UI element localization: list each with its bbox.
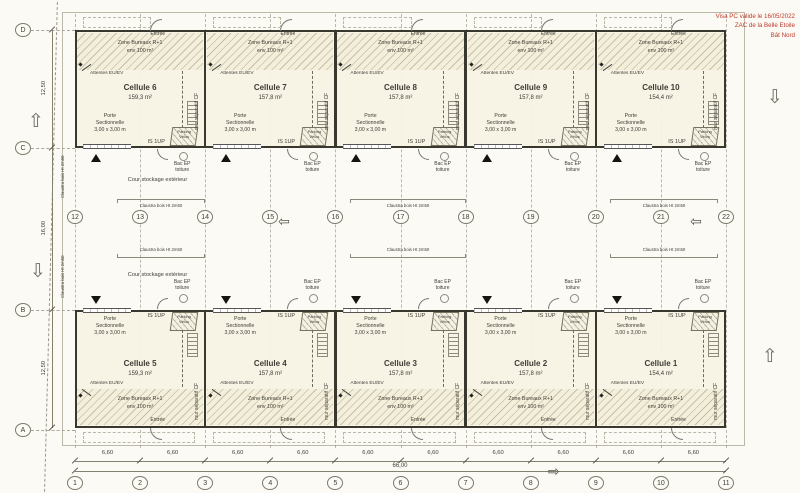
roof-drain-label: toiture: [551, 168, 595, 174]
roof-drain-label: toiture: [160, 168, 204, 174]
sectional-door: [474, 144, 522, 149]
grid-bubble-bottom: 2: [132, 476, 148, 490]
office-zone-label: env 100 m²: [598, 405, 724, 411]
porte-label: Porte: [341, 317, 399, 323]
service-dotted-line: [312, 330, 313, 387]
row-leader-line: [31, 430, 75, 431]
attentes-label: Attentes EU/EV: [611, 71, 644, 76]
roof-drain-label: toiture: [421, 286, 465, 292]
grid-bubble-bottom: 1: [67, 476, 83, 490]
bay-width-label: 6,60: [270, 450, 335, 456]
cell-title: Cellule 9: [466, 84, 596, 93]
cell-area: 154,4 m²: [596, 95, 726, 102]
porte-label: Sectionnelle: [211, 324, 269, 330]
claustra-label: Claustra bois Ht 2m50: [610, 248, 718, 253]
separating-wall-label: mur séparatif CF: [456, 52, 465, 130]
cell-title: Cellule 4: [205, 360, 335, 369]
grid-bubble-bottom: 11: [718, 476, 734, 490]
bay-width-label: 6,60: [140, 450, 205, 456]
separating-wall: [334, 310, 336, 428]
sectional-door: [604, 308, 652, 313]
dim-line-total: [75, 471, 726, 472]
porte-label: 3,00 x 3,00 m: [341, 128, 399, 134]
grid-bubble-bottom: 4: [262, 476, 278, 490]
is1up-label: IS 1UP: [141, 139, 171, 145]
roof-drain-label: toiture: [290, 168, 334, 174]
cell-area: 159,3 m²: [75, 95, 205, 102]
cell-area: 157,8 m²: [205, 371, 335, 378]
canopy-dashed: [83, 17, 151, 28]
courtyard-label: Cour stockage extérieur: [100, 177, 215, 183]
courtyard-label: Cour stockage extérieur: [100, 272, 215, 278]
attentes-label: Attentes EU/EV: [481, 381, 514, 386]
cell-area: 157,8 m²: [205, 95, 335, 102]
roof-drain-label: toiture: [681, 286, 725, 292]
separating-wall-label: mur séparatif CF: [325, 342, 334, 420]
attentes-label: Attentes EU/EV: [481, 71, 514, 76]
grid-bubble-bottom: 8: [523, 476, 539, 490]
porte-label: Sectionnelle: [211, 121, 269, 127]
bay-width-label: 6,60: [466, 450, 531, 456]
cell-title: Cellule 8: [335, 84, 465, 93]
cell-area: 159,3 m²: [75, 371, 205, 378]
flow-arrow-up: ⇧: [28, 110, 44, 132]
porte-label: Porte: [81, 114, 139, 120]
porte-label: Porte: [602, 317, 660, 323]
is1up-label: IS 1UP: [271, 313, 301, 319]
canopy-dashed: [604, 432, 716, 443]
office-zone-label: Zone Bureaux R+1: [468, 397, 594, 403]
porte-label: Sectionnelle: [472, 324, 530, 330]
porte-label: Porte: [211, 317, 269, 323]
dim-tick: [723, 457, 729, 463]
roof-drain-label: toiture: [290, 286, 334, 292]
attentes-label: Attentes EU/EV: [350, 71, 383, 76]
office-zone-label: Zone Bureaux R+1: [207, 397, 333, 403]
canopy-dashed: [343, 432, 455, 443]
grid-bubble-bottom: 3: [197, 476, 213, 490]
roof-drain-circle: [700, 294, 709, 303]
dim-span-label: 12,50: [41, 351, 47, 385]
porte-label: Sectionnelle: [602, 324, 660, 330]
flow-arrow-right: ⇨: [548, 464, 560, 480]
grid-bubble-bottom: 7: [458, 476, 474, 490]
porte-label: Sectionnelle: [341, 121, 399, 127]
separating-wall-label: mur séparatif CF: [714, 52, 723, 130]
separating-wall-label: mur séparatif CF: [586, 342, 595, 420]
is1up-label: IS 1UP: [662, 139, 692, 145]
grid-bubble-bottom: 5: [327, 476, 343, 490]
grid-bubble-top: 17: [393, 210, 409, 224]
bike-parking-label: Vélos: [432, 320, 458, 324]
office-zone-label: Zone Bureaux R+1: [77, 41, 203, 47]
grid-bubble-top: 22: [718, 210, 734, 224]
office-zone-label: Zone Bureaux R+1: [77, 397, 203, 403]
is1up-label: IS 1UP: [532, 139, 562, 145]
grid-bubble-bottom: 6: [393, 476, 409, 490]
grid-axis-line: [726, 14, 727, 448]
sectional-door: [343, 144, 391, 149]
claustra-label: Claustra bois Ht 2m50: [117, 248, 205, 253]
flow-arrow-left: ⇦: [278, 214, 290, 230]
service-dotted-line: [182, 71, 183, 128]
office-zone-label: Zone Bureaux R+1: [468, 41, 594, 47]
is1up-label: IS 1UP: [662, 313, 692, 319]
grid-bubble-bottom: 10: [653, 476, 669, 490]
service-dotted-line: [312, 71, 313, 128]
bay-width-label: 6,60: [596, 450, 661, 456]
row-bubble: D: [15, 23, 31, 37]
office-zone-label: env 100 m²: [207, 49, 333, 55]
grid-bubble-top: 18: [458, 210, 474, 224]
office-zone-label: env 100 m²: [468, 405, 594, 411]
is1up-label: IS 1UP: [532, 313, 562, 319]
canopy-dashed: [83, 432, 195, 443]
grid-bubble-top: 20: [588, 210, 604, 224]
service-dotted-line: [443, 330, 444, 387]
sectional-door: [474, 308, 522, 313]
canopy-dashed: [474, 17, 542, 28]
marker-triangle-up: [612, 154, 622, 162]
row-leader-line: [31, 310, 75, 311]
sectional-door: [213, 144, 261, 149]
porte-label: 3,00 x 3,00 m: [472, 331, 530, 337]
canopy-dashed: [213, 432, 325, 443]
roof-drain-label: toiture: [160, 286, 204, 292]
bike-parking-label: Vélos: [562, 135, 588, 139]
porte-label: Porte: [602, 114, 660, 120]
roof-drain-circle: [570, 294, 579, 303]
sectional-door: [83, 144, 131, 149]
separating-wall-label: mur séparatif CF: [714, 342, 723, 420]
porte-label: 3,00 x 3,00 m: [211, 331, 269, 337]
floor-plan: Zone Bureaux R+1env 100 m²EntréeAttentes…: [0, 0, 800, 493]
porte-label: Sectionnelle: [602, 121, 660, 127]
dim-span-label: 16,00: [41, 211, 47, 245]
porte-label: 3,00 x 3,00 m: [81, 128, 139, 134]
canopy-dashed: [474, 432, 586, 443]
claustra-label-vertical: Claustra bois Ht 2m50: [61, 156, 69, 198]
roof-drain-circle: [440, 152, 449, 161]
bike-parking-label: Vélos: [562, 320, 588, 324]
visa-stamp-line: Bât Nord: [610, 31, 795, 40]
claustra-label: Claustra bois Ht 2m50: [350, 204, 466, 209]
grid-bubble-top: 12: [67, 210, 83, 224]
flow-arrow-down: ⇩: [30, 260, 46, 282]
office-zone-label: env 100 m²: [77, 405, 203, 411]
office-zone-label: Zone Bureaux R+1: [337, 41, 463, 47]
office-zone-label: Zone Bureaux R+1: [337, 397, 463, 403]
cell-title: Cellule 5: [75, 360, 205, 369]
marker-triangle-down: [91, 296, 101, 304]
office-zone-label: Zone Bureaux R+1: [598, 397, 724, 403]
marker-triangle-up: [91, 154, 101, 162]
entrance-label: Entrée: [521, 32, 576, 38]
dim-line-left: [52, 30, 53, 428]
service-dotted-line: [182, 330, 183, 387]
porte-label: 3,00 x 3,00 m: [472, 128, 530, 134]
roof-drain-circle: [570, 152, 579, 161]
roof-drain-circle: [440, 294, 449, 303]
cell-title: Cellule 1: [596, 360, 726, 369]
is1up-label: IS 1UP: [402, 139, 432, 145]
marker-triangle-up: [221, 154, 231, 162]
grid-bubble-top: 21: [653, 210, 669, 224]
grid-bubble-top: 19: [523, 210, 539, 224]
sectional-door: [343, 308, 391, 313]
roof-drain-label: toiture: [681, 168, 725, 174]
claustra-fence: [117, 254, 205, 258]
porte-label: Sectionnelle: [81, 324, 139, 330]
service-dotted-line: [573, 330, 574, 387]
office-zone-label: env 100 m²: [337, 49, 463, 55]
cell-title: Cellule 7: [205, 84, 335, 93]
grid-bubble-top: 13: [132, 210, 148, 224]
porte-label: Porte: [211, 114, 269, 120]
office-zone-label: env 100 m²: [207, 405, 333, 411]
bay-width-label: 6,60: [335, 450, 400, 456]
marker-triangle-down: [612, 296, 622, 304]
is1up-label: IS 1UP: [271, 139, 301, 145]
cell-title: Cellule 6: [75, 84, 205, 93]
attentes-label: Attentes EU/EV: [220, 71, 253, 76]
claustra-fence: [350, 254, 466, 258]
canopy-dashed: [343, 17, 411, 28]
bike-parking-label: Vélos: [171, 135, 197, 139]
separating-wall-label: mur séparatif CF: [195, 342, 204, 420]
bike-parking-label: Vélos: [692, 135, 718, 139]
cell-area: 157,8 m²: [335, 371, 465, 378]
cell-area: 154,4 m²: [596, 371, 726, 378]
separating-wall-label: mur séparatif CF: [586, 52, 595, 130]
office-zone-label: Zone Bureaux R+1: [207, 41, 333, 47]
visa-stamp-line: ZAC de la Belle Etoile: [610, 21, 795, 30]
entrance-label: Entrée: [130, 418, 185, 424]
grid-bubble-bottom: 9: [588, 476, 604, 490]
roof-drain-label: toiture: [551, 286, 595, 292]
porte-label: Porte: [472, 114, 530, 120]
sectional-door: [83, 308, 131, 313]
bay-width-label: 6,60: [531, 450, 596, 456]
entrance-label: Entrée: [651, 418, 706, 424]
porte-label: Sectionnelle: [81, 121, 139, 127]
entrance-label: Entrée: [521, 418, 576, 424]
row-leader-line: [31, 30, 75, 31]
office-zone-label: env 100 m²: [77, 49, 203, 55]
canopy-dashed: [213, 17, 281, 28]
porte-label: Porte: [472, 317, 530, 323]
bike-parking-label: Vélos: [301, 320, 327, 324]
cell-title: Cellule 2: [466, 360, 596, 369]
entrance-label: Entrée: [391, 418, 446, 424]
bike-parking-label: Vélos: [432, 135, 458, 139]
service-dotted-line: [703, 71, 704, 128]
is1up-label: IS 1UP: [402, 313, 432, 319]
porte-label: Sectionnelle: [341, 324, 399, 330]
separating-wall-label: mur séparatif CF: [325, 52, 334, 130]
cell-title: Cellule 10: [596, 84, 726, 93]
flow-arrow-left: ⇦: [690, 214, 702, 230]
claustra-label: Claustra bois Ht 2m50: [117, 204, 205, 209]
sectional-door: [604, 144, 652, 149]
office-zone-label: env 100 m²: [598, 49, 724, 55]
porte-label: 3,00 x 3,00 m: [602, 128, 660, 134]
attentes-label: Attentes EU/EV: [90, 381, 123, 386]
porte-label: Porte: [81, 317, 139, 323]
service-dotted-line: [443, 71, 444, 128]
marker-triangle-up: [351, 154, 361, 162]
bike-parking-label: Vélos: [171, 320, 197, 324]
bay-width-label: 6,60: [661, 450, 726, 456]
entrance-label: Entrée: [260, 418, 315, 424]
row-bubble: B: [15, 303, 31, 317]
office-zone-label: env 100 m²: [337, 405, 463, 411]
service-dotted-line: [573, 71, 574, 128]
bike-parking-label: Vélos: [692, 320, 718, 324]
claustra-label: Claustra bois Ht 2m50: [610, 204, 718, 209]
visa-stamp-line: Visa PC valide le 16/05/2022: [610, 12, 795, 21]
separating-wall-label: mur séparatif CF: [456, 342, 465, 420]
porte-label: 3,00 x 3,00 m: [211, 128, 269, 134]
marker-triangle-down: [221, 296, 231, 304]
roof-drain-label: toiture: [421, 168, 465, 174]
bay-width-label: 6,60: [205, 450, 270, 456]
porte-label: 3,00 x 3,00 m: [81, 331, 139, 337]
cell-title: Cellule 3: [335, 360, 465, 369]
flow-arrow-down: ⇩: [767, 86, 783, 108]
dim-tick: [723, 467, 729, 473]
bay-width-label: 6,60: [401, 450, 466, 456]
marker-triangle-down: [482, 296, 492, 304]
entrance-label: Entrée: [130, 32, 185, 38]
claustra-fence: [610, 254, 718, 258]
porte-label: Sectionnelle: [472, 121, 530, 127]
row-bubble: C: [15, 141, 31, 155]
cell-area: 157,8 m²: [466, 371, 596, 378]
marker-triangle-up: [482, 154, 492, 162]
is1up-label: IS 1UP: [141, 313, 171, 319]
attentes-label: Attentes EU/EV: [90, 71, 123, 76]
porte-label: 3,00 x 3,00 m: [341, 331, 399, 337]
cell-area: 157,8 m²: [335, 95, 465, 102]
service-dotted-line: [703, 330, 704, 387]
sectional-door: [213, 308, 261, 313]
row-leader-line: [31, 148, 75, 149]
office-zone-label: Zone Bureaux R+1: [598, 41, 724, 47]
attentes-label: Attentes EU/EV: [611, 381, 644, 386]
marker-triangle-down: [351, 296, 361, 304]
row-bubble: A: [15, 423, 31, 437]
attentes-label: Attentes EU/EV: [350, 381, 383, 386]
visa-stamp: Visa PC valide le 16/05/2022ZAC de la Be…: [610, 12, 795, 40]
separating-wall: [204, 310, 206, 428]
attentes-label: Attentes EU/EV: [220, 381, 253, 386]
bay-width-label: 6,60: [75, 450, 140, 456]
total-width-label: 66,00: [367, 463, 433, 470]
cell-area: 157,8 m²: [466, 95, 596, 102]
porte-label: Porte: [341, 114, 399, 120]
entrance-label: Entrée: [391, 32, 446, 38]
separating-wall-label: mur séparatif CF: [195, 52, 204, 130]
dim-span-label: 12,50: [41, 71, 47, 105]
bike-parking-label: Vélos: [301, 135, 327, 139]
roof-drain-circle: [700, 152, 709, 161]
claustra-label: Claustra bois Ht 2m50: [350, 248, 466, 253]
claustra-label-vertical: Claustra bois Ht 2m50: [61, 256, 69, 298]
porte-label: 3,00 x 3,00 m: [602, 331, 660, 337]
office-zone-label: env 100 m²: [468, 49, 594, 55]
flow-arrow-up: ⇧: [762, 345, 778, 367]
entrance-label: Entrée: [260, 32, 315, 38]
